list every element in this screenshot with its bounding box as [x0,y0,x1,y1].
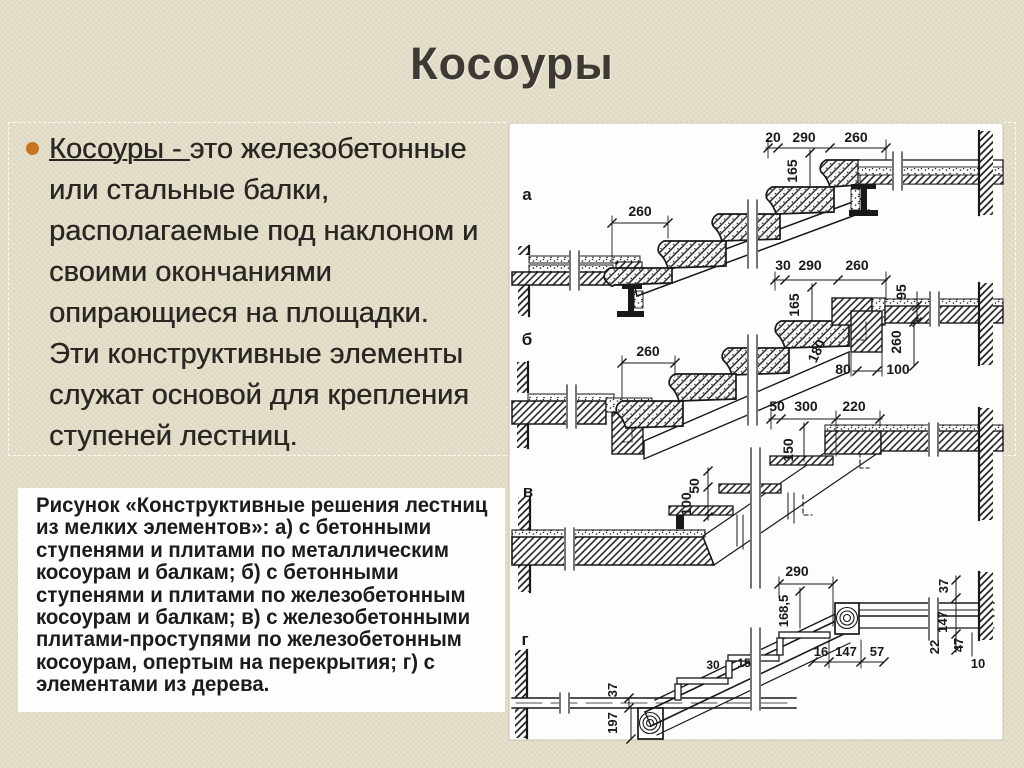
svg-text:50: 50 [769,398,785,414]
svg-text:165: 165 [786,293,802,317]
svg-text:в: в [523,482,533,501]
svg-text:37: 37 [936,579,951,593]
svg-text:37: 37 [605,683,620,697]
svg-text:50: 50 [686,478,702,494]
svg-text:10: 10 [971,656,985,671]
svg-text:300: 300 [794,398,818,414]
svg-text:100: 100 [886,361,910,377]
svg-text:а: а [522,185,532,204]
svg-text:150: 150 [780,438,796,462]
svg-text:165: 165 [784,159,800,183]
svg-text:б: б [522,330,533,349]
svg-text:168,5: 168,5 [776,595,791,628]
svg-text:22: 22 [927,640,942,654]
svg-text:220: 220 [842,398,866,414]
svg-text:15: 15 [737,656,751,670]
svg-text:290: 290 [798,257,822,273]
svg-text:100: 100 [678,492,694,516]
svg-text:30: 30 [706,658,720,672]
svg-text:197: 197 [605,712,620,734]
svg-text:47: 47 [951,638,966,652]
svg-text:260: 260 [628,203,652,219]
svg-text:80: 80 [835,361,851,377]
svg-text:147: 147 [935,611,950,633]
svg-text:260: 260 [844,129,868,145]
svg-text:290: 290 [785,563,809,579]
svg-text:г: г [521,630,528,649]
svg-text:260: 260 [636,343,660,359]
svg-text:260: 260 [888,330,904,354]
svg-text:95: 95 [893,284,909,300]
svg-text:30: 30 [775,257,791,273]
svg-text:16: 16 [814,644,828,659]
svg-text:290: 290 [792,129,816,145]
svg-text:260: 260 [845,257,869,273]
svg-text:57: 57 [870,644,884,659]
svg-text:147: 147 [835,644,857,659]
